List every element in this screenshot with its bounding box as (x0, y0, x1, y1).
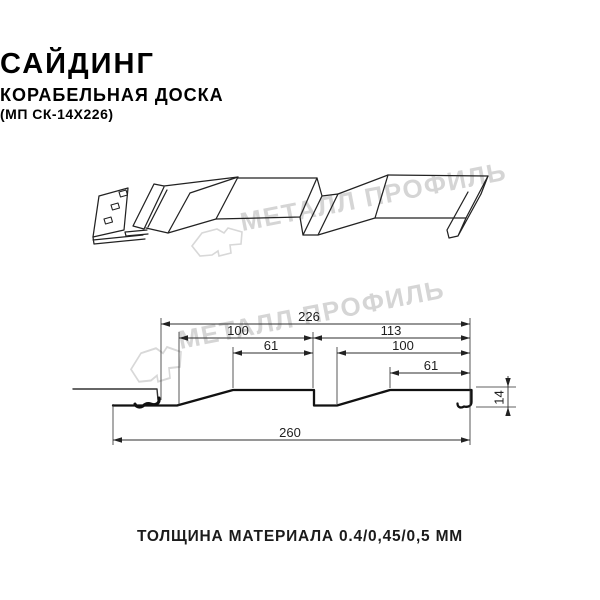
dim-label-right-section: 113 (381, 324, 402, 337)
dim-label-overall-width: 260 (279, 426, 301, 439)
dim-label-left-board: 100 (227, 324, 249, 337)
dim-label-right-flat: 61 (424, 359, 438, 372)
technical-drawing-svg (0, 0, 600, 600)
dim-label-right-board: 100 (392, 339, 414, 352)
watermark-logo (131, 228, 242, 382)
profile-outline (113, 390, 472, 408)
adjacent-panel-edge (73, 389, 158, 400)
extension-lines (113, 318, 516, 445)
dim-label-left-flat: 61 (264, 339, 278, 352)
dim-label-profile-width: 226 (298, 310, 320, 323)
dim-label-height: 14 (493, 390, 506, 404)
dimension-rules (113, 324, 508, 440)
dimension-arrows (113, 321, 511, 442)
material-thickness-note: ТОЛЩИНА МАТЕРИАЛА 0.4/0,45/0,5 ММ (0, 528, 600, 546)
diagram-page: САЙДИНГ КОРАБЕЛЬНАЯ ДОСКА (МП СК-14Х226)… (0, 0, 600, 600)
dimension-lines (113, 318, 516, 445)
panel-3d-view (93, 175, 488, 244)
profile-cross-section (73, 389, 472, 408)
